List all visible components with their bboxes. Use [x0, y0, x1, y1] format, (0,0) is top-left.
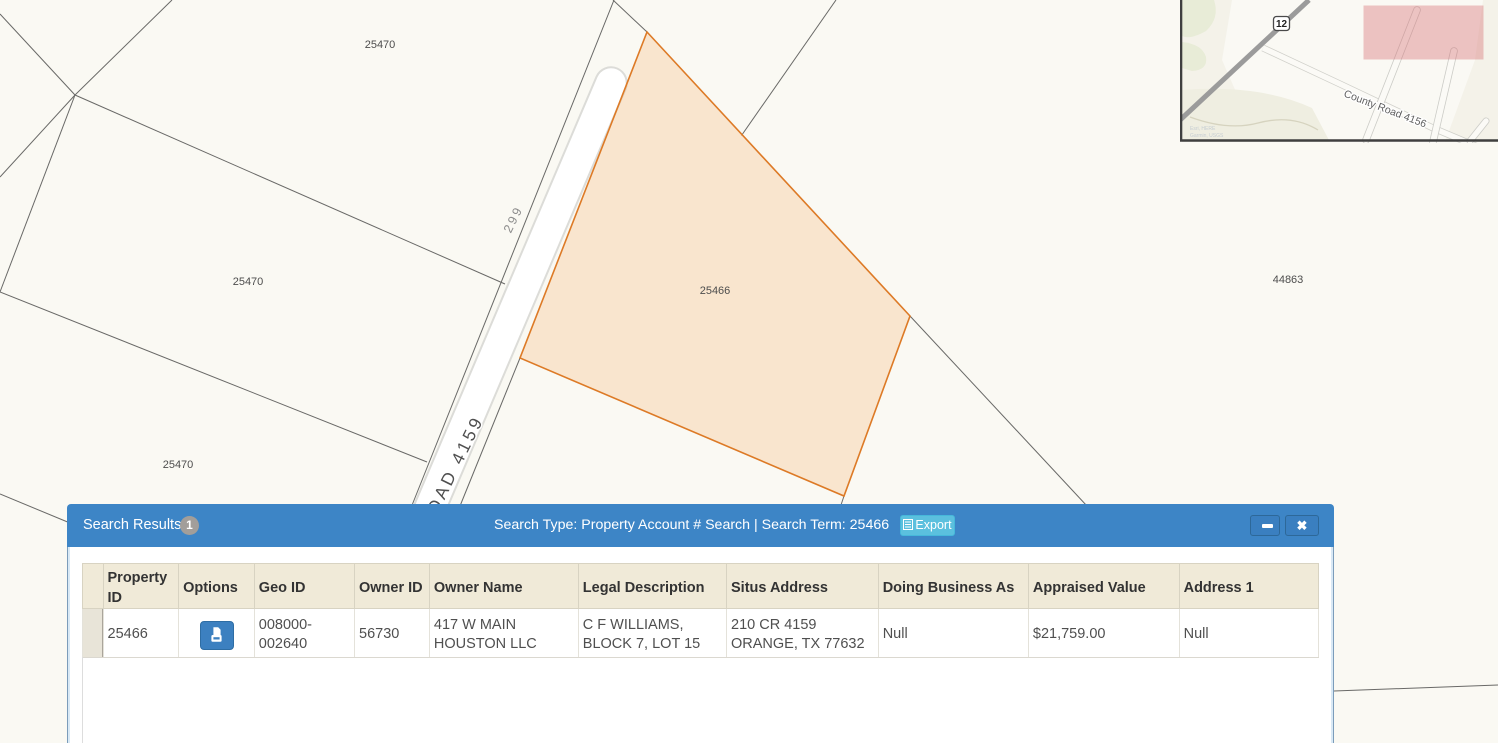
svg-text:25470: 25470 — [365, 39, 396, 51]
svg-text:Esri, HERE: Esri, HERE — [1190, 126, 1216, 132]
svg-text:12: 12 — [1276, 19, 1288, 30]
svg-text:25470: 25470 — [163, 459, 194, 471]
svg-text:25466: 25466 — [700, 285, 731, 297]
svg-text:44863: 44863 — [1273, 274, 1304, 286]
svg-text:Garmin, USGS: Garmin, USGS — [1190, 133, 1224, 139]
svg-text:25470: 25470 — [233, 276, 264, 288]
